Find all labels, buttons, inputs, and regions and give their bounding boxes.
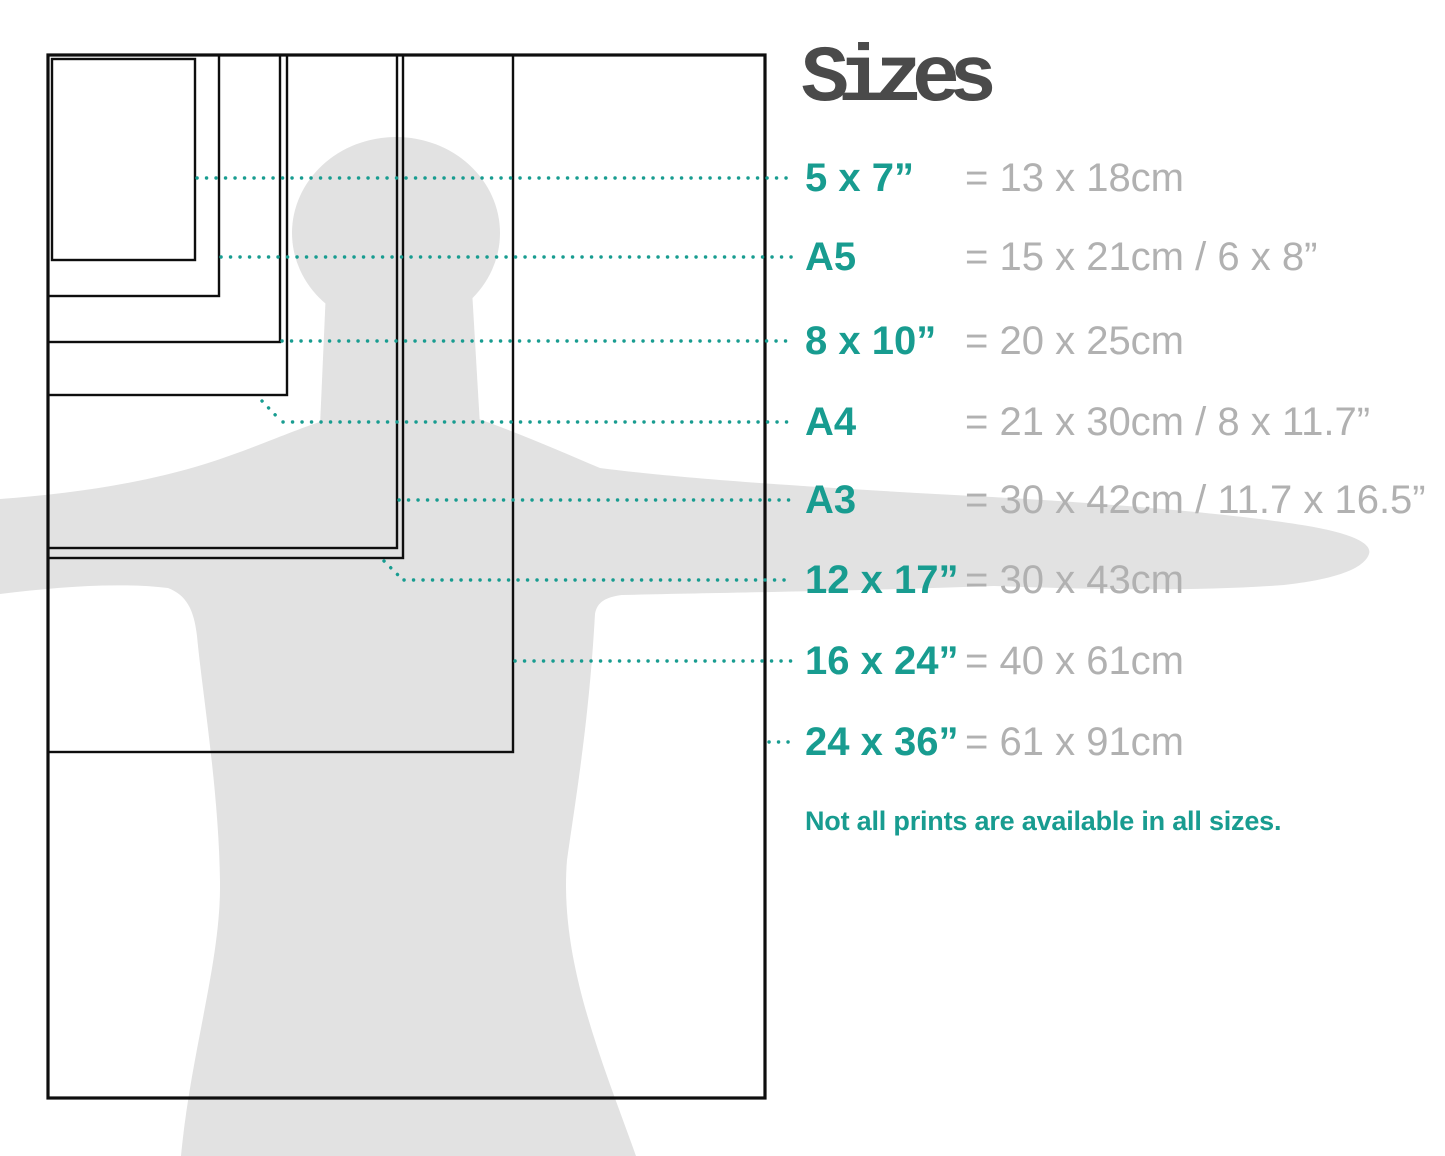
size-label-8x10: 8 x 10” xyxy=(805,317,965,365)
size-value-12x17: = 30 x 43cm xyxy=(965,558,1184,602)
legend-row-5x7: 5 x 7”= 13 x 18cm xyxy=(805,154,1184,202)
size-label-a5: A5 xyxy=(805,233,965,281)
size-value-5x7: = 13 x 18cm xyxy=(965,156,1184,200)
size-rect-5x7 xyxy=(52,59,195,260)
size-value-24x36: = 61 x 91cm xyxy=(965,720,1184,764)
size-value-a3: = 30 x 42cm / 11.7 x 16.5” xyxy=(965,478,1426,522)
silhouette-neck xyxy=(320,290,480,426)
legend-row-8x10: 8 x 10”= 20 x 25cm xyxy=(805,317,1184,365)
legend-row-16x24: 16 x 24”= 40 x 61cm xyxy=(805,637,1184,685)
print-size-guide: Sizes 5 x 7”= 13 x 18cm A5= 15 x 21cm / … xyxy=(0,0,1445,1156)
size-label-a4: A4 xyxy=(805,398,965,446)
availability-note: Not all prints are available in all size… xyxy=(805,806,1281,837)
size-value-a5: = 15 x 21cm / 6 x 8” xyxy=(965,235,1317,279)
legend-row-24x36: 24 x 36”= 61 x 91cm xyxy=(805,718,1184,766)
silhouette-body-arms xyxy=(0,418,1369,1156)
leader-diag-a4 xyxy=(262,401,281,421)
legend-row-a3: A3= 30 x 42cm / 11.7 x 16.5” xyxy=(805,476,1426,524)
size-label-24x36: 24 x 36” xyxy=(805,718,965,766)
size-label-5x7: 5 x 7” xyxy=(805,154,965,202)
size-rect-8x10 xyxy=(48,55,280,342)
size-label-12x17: 12 x 17” xyxy=(805,556,965,604)
page-title: Sizes xyxy=(801,40,986,120)
size-value-a4: = 21 x 30cm / 8 x 11.7” xyxy=(965,400,1370,444)
size-diagram xyxy=(0,0,1445,1156)
size-value-16x24: = 40 x 61cm xyxy=(965,639,1184,683)
legend-row-a5: A5= 15 x 21cm / 6 x 8” xyxy=(805,233,1317,281)
size-rect-a4 xyxy=(48,55,287,395)
size-label-16x24: 16 x 24” xyxy=(805,637,965,685)
size-value-8x10: = 20 x 25cm xyxy=(965,319,1184,363)
legend-row-a4: A4= 21 x 30cm / 8 x 11.7” xyxy=(805,398,1370,446)
legend-row-12x17: 12 x 17”= 30 x 43cm xyxy=(805,556,1184,604)
size-label-a3: A3 xyxy=(805,476,965,524)
